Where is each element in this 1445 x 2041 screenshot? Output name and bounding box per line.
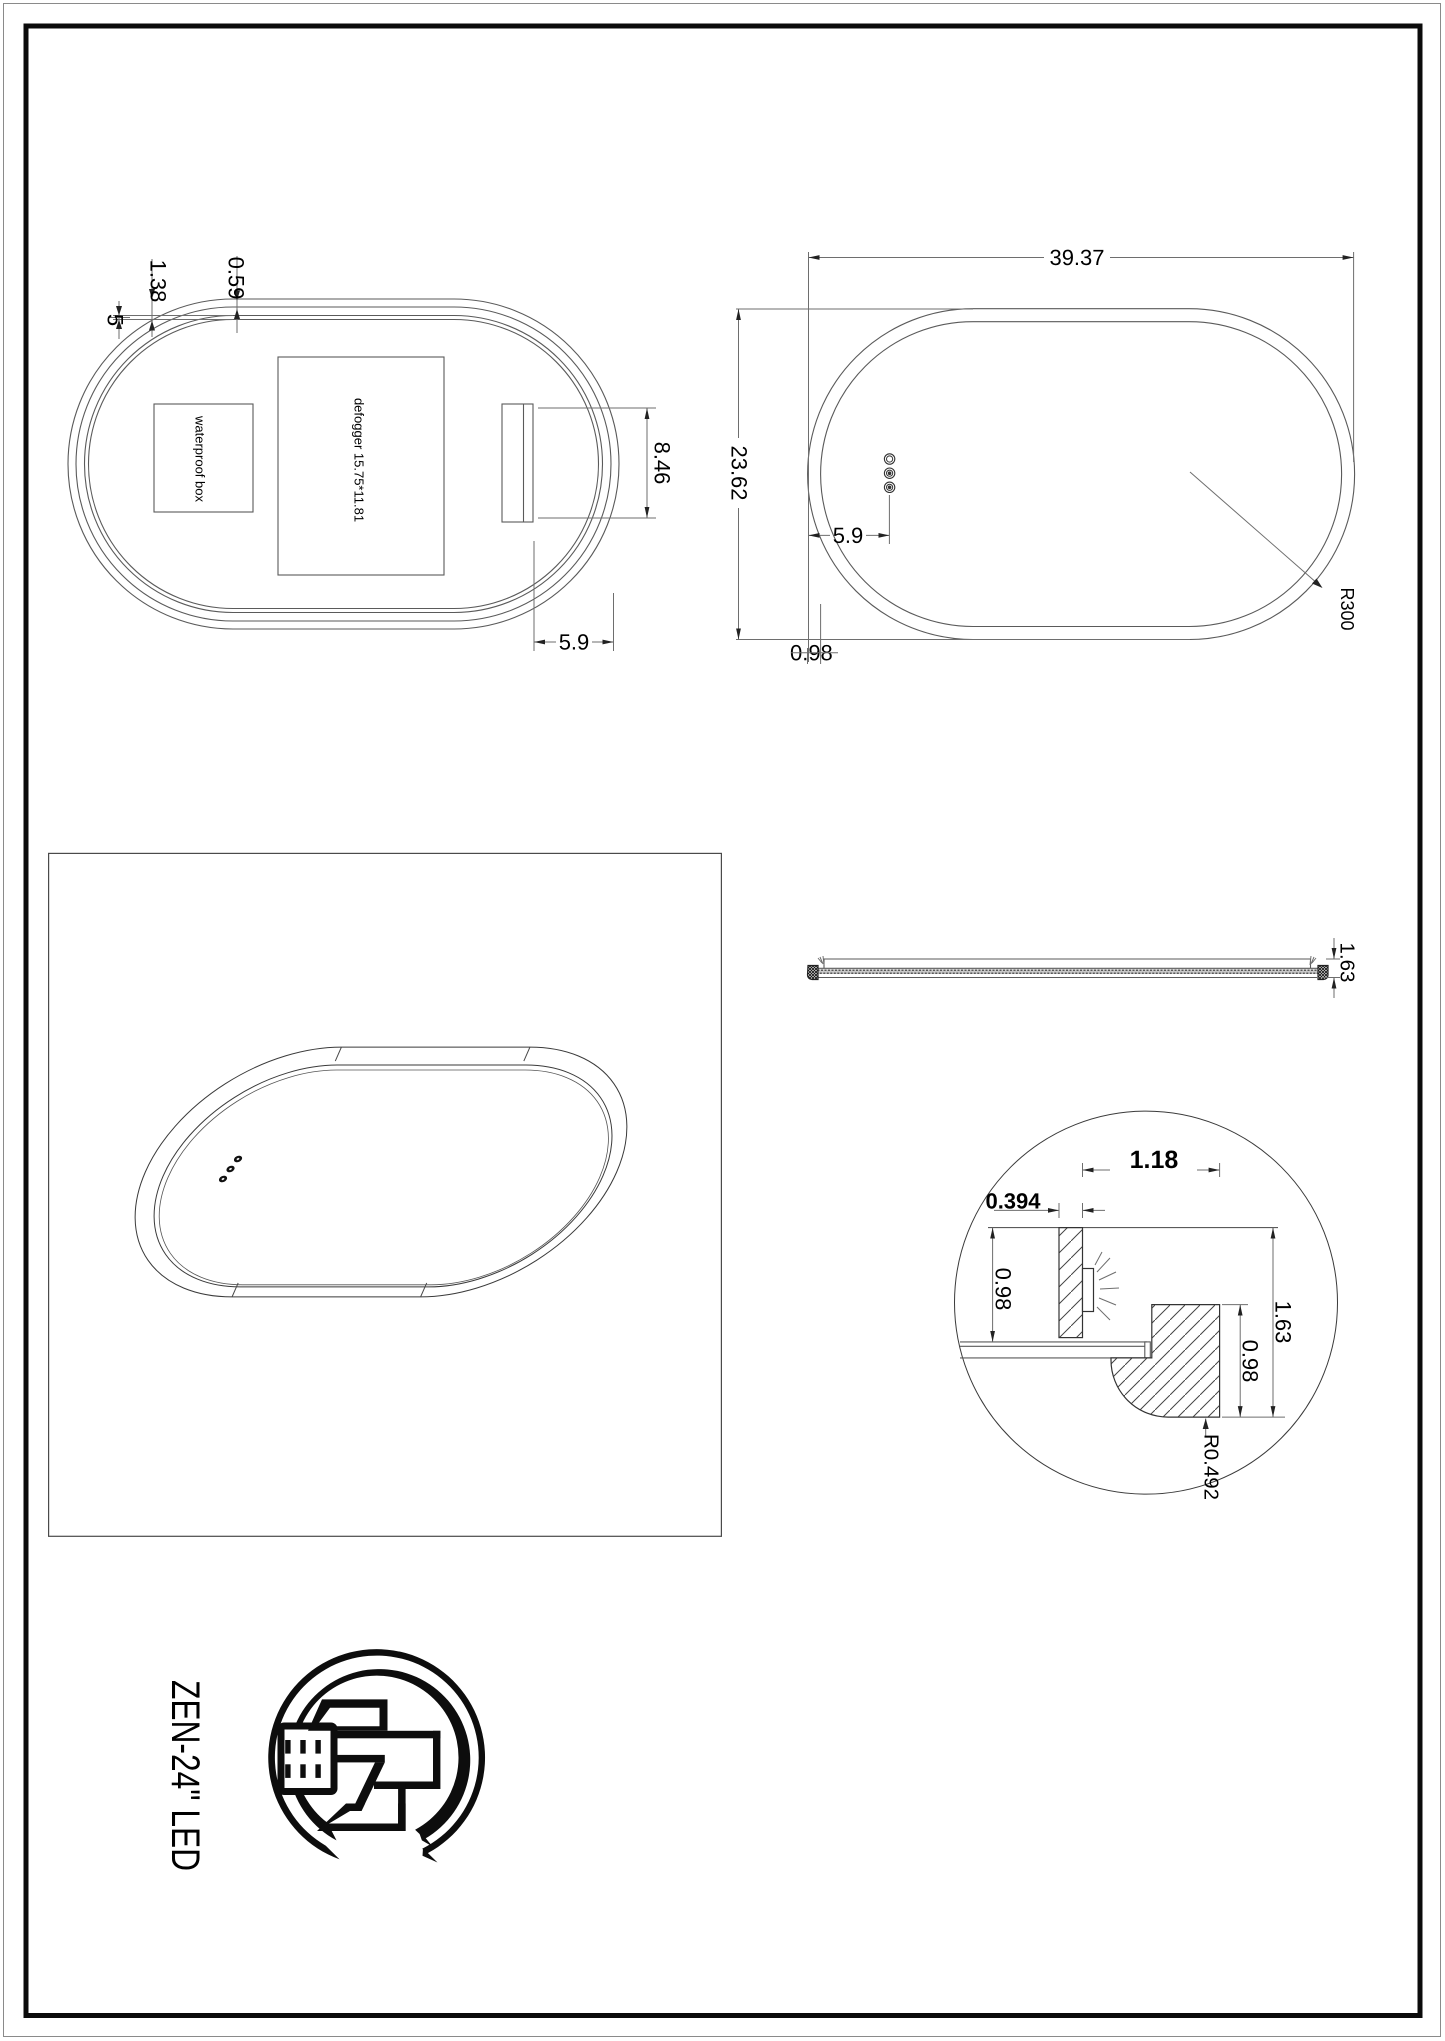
svg-text:0.394: 0.394 [985, 1188, 1041, 1213]
svg-text:R300: R300 [1337, 587, 1357, 630]
svg-text:8.46: 8.46 [650, 442, 675, 485]
svg-text:1.63: 1.63 [1336, 943, 1359, 983]
svg-text:waterproof box: waterproof box [193, 415, 208, 502]
svg-text:ZEN-24" LED: ZEN-24" LED [163, 1680, 207, 1871]
svg-text:5.9: 5.9 [559, 629, 590, 654]
svg-text:0.98: 0.98 [1238, 1340, 1263, 1383]
svg-text:5.9: 5.9 [833, 523, 864, 548]
svg-text:5: 5 [103, 314, 128, 326]
svg-text:defogger 15.75*11.81: defogger 15.75*11.81 [352, 398, 367, 522]
svg-text:39.37: 39.37 [1049, 245, 1104, 270]
svg-text:1.18: 1.18 [1130, 1146, 1179, 1174]
svg-text:0.98: 0.98 [991, 1268, 1016, 1311]
svg-text:23.62: 23.62 [727, 445, 752, 500]
svg-text:1.38: 1.38 [146, 260, 171, 303]
svg-text:0.59: 0.59 [224, 257, 249, 300]
svg-text:1.63: 1.63 [1271, 1301, 1296, 1344]
svg-text:R0.492: R0.492 [1200, 1434, 1223, 1500]
